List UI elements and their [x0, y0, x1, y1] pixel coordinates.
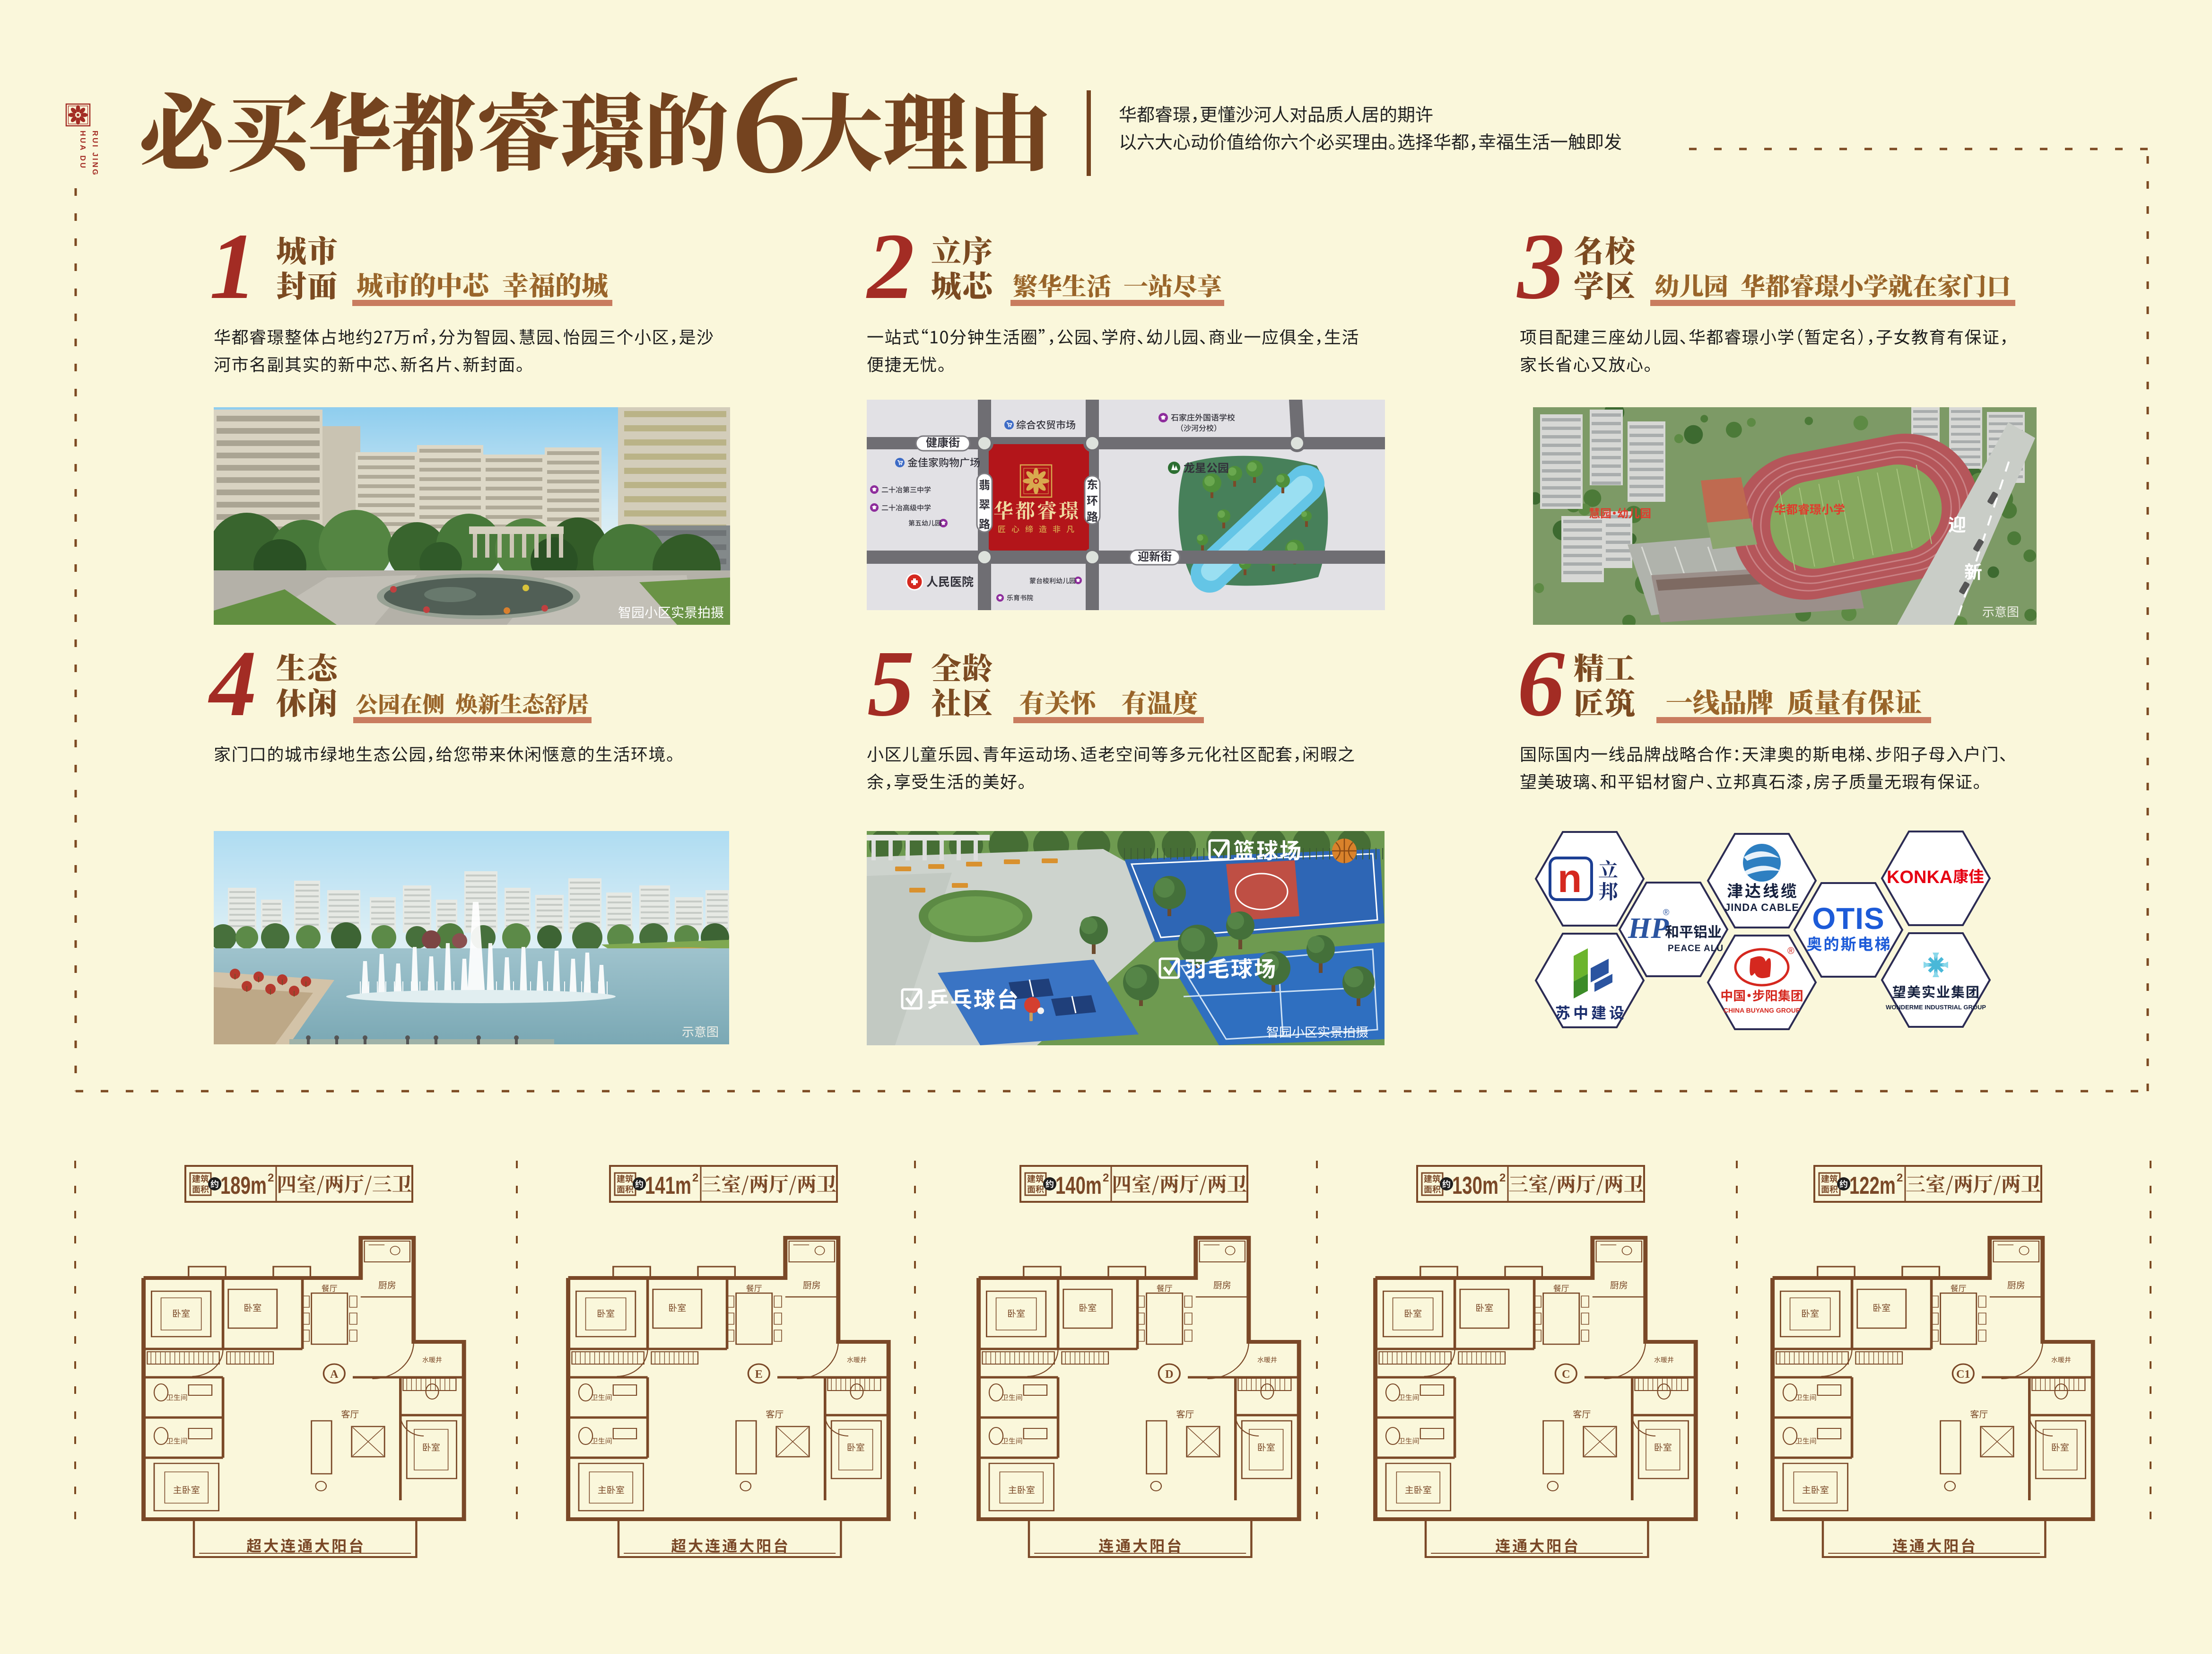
svg-text:189m: 189m — [220, 1172, 267, 1199]
svg-text:4: 4 — [208, 631, 257, 736]
svg-text:141m: 141m — [645, 1172, 691, 1199]
svg-text:HUA DU: HUA DU — [78, 131, 87, 170]
svg-text:6: 6 — [1517, 631, 1565, 736]
svg-text:D: D — [1165, 1368, 1173, 1381]
svg-text:5: 5 — [867, 631, 914, 736]
svg-text:140m: 140m — [1055, 1172, 1102, 1199]
svg-text:RUI JING: RUI JING — [91, 131, 99, 176]
svg-text:WONDERME INDUSTRIAL GROUP: WONDERME INDUSTRIAL GROUP — [1886, 1004, 1986, 1011]
svg-text:®: ® — [1663, 908, 1669, 917]
svg-text:E: E — [755, 1368, 763, 1381]
svg-text:PEACE ALU: PEACE ALU — [1668, 944, 1724, 954]
svg-text:JINDA CABLE: JINDA CABLE — [1724, 901, 1799, 913]
svg-text:3: 3 — [1516, 214, 1565, 319]
svg-text:2: 2 — [866, 214, 914, 319]
svg-text:HP: HP — [1628, 912, 1669, 945]
svg-text:OTIS: OTIS — [1812, 901, 1884, 936]
svg-text:2: 2 — [268, 1172, 274, 1184]
svg-text:n: n — [1558, 856, 1582, 901]
svg-text:CHINA BUYANG GROUP: CHINA BUYANG GROUP — [1724, 1006, 1800, 1014]
svg-text:2: 2 — [692, 1172, 698, 1184]
svg-text:2: 2 — [1103, 1172, 1109, 1184]
svg-text:122m: 122m — [1849, 1172, 1896, 1199]
svg-text:®: ® — [1787, 946, 1794, 956]
svg-text:C1: C1 — [1956, 1368, 1970, 1381]
svg-text:1: 1 — [209, 214, 257, 319]
svg-text:KONKA: KONKA — [1887, 867, 1952, 887]
svg-text:2: 2 — [1499, 1172, 1506, 1184]
svg-text:C: C — [1562, 1368, 1570, 1381]
svg-text:130m: 130m — [1452, 1172, 1498, 1199]
svg-text:A: A — [330, 1368, 339, 1381]
svg-text:2: 2 — [1897, 1172, 1903, 1184]
